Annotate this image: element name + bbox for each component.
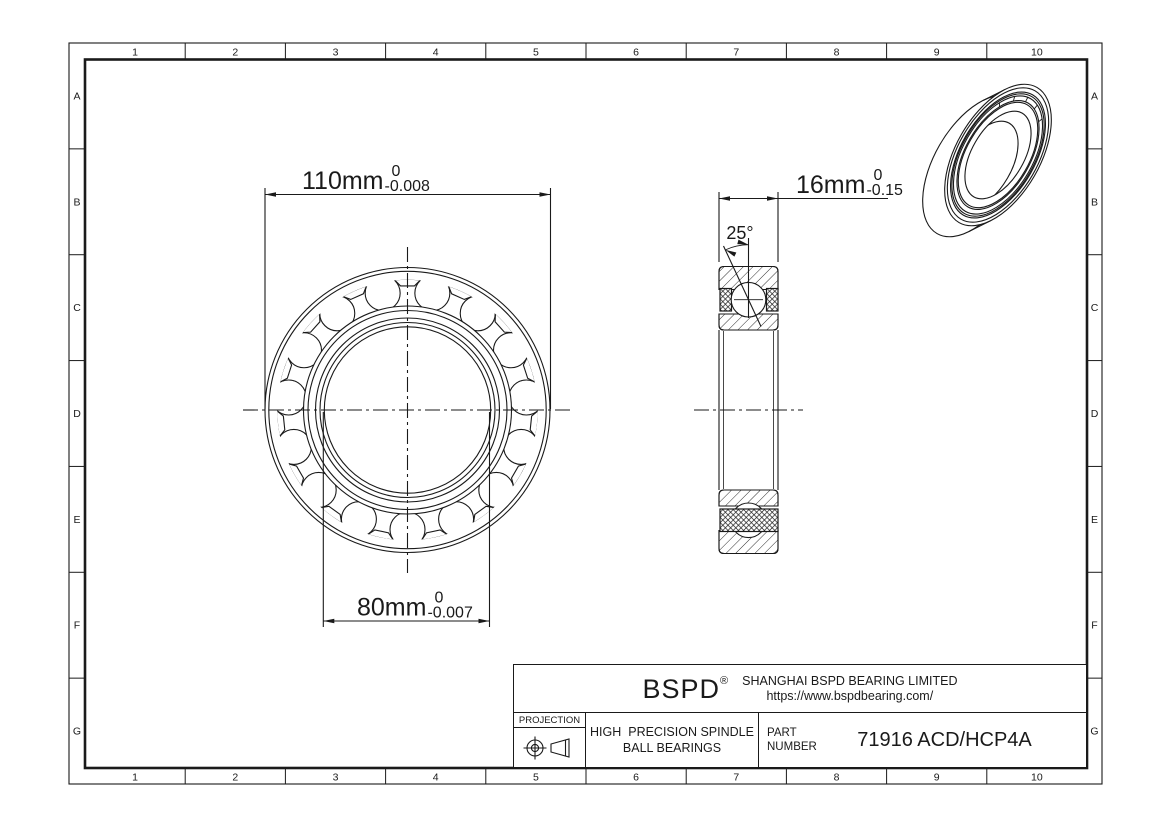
company-logo: BSPD® [643,675,729,703]
projection-symbol [514,728,585,767]
dim-outer-tol-lower: -0.008 [385,178,430,195]
zone-column-label: 9 [934,47,940,59]
zone-column-label: 6 [633,47,639,59]
dimension-width: 16mm0-0.15 [719,167,903,262]
zone-column-label: 3 [333,772,339,784]
zone-column-label: 7 [733,47,739,59]
zone-row-label: A [73,90,80,102]
zone-row-label: A [1091,90,1098,102]
product-line1: HIGH PRECISION SPINDLE [590,724,754,740]
dim-contact-angle-value: 25° [726,223,753,243]
zone-column-label: 8 [834,47,840,59]
zone-row-label: C [1091,302,1099,314]
zone-column-label: 8 [834,772,840,784]
registered-mark: ® [720,675,728,687]
zone-row-label: C [73,302,81,314]
isometric-view [901,66,1074,254]
dim-width-value: 16mm [796,171,865,199]
zone-column-label: 3 [333,47,339,59]
company-name: SHANGHAI BSPD BEARING LIMITED [742,674,957,689]
zone-row-label: G [73,726,81,738]
title-block-company-row: BSPD® SHANGHAI BSPD BEARING LIMITED http… [514,665,1086,713]
part-number-cell: PART NUMBER 71916 ACD/HCP4A [759,713,1086,767]
zone-row-label: G [1090,726,1098,738]
zone-row-label: E [73,514,80,526]
dim-width-tol-lower: -0.15 [866,182,903,199]
projection-cell: PROJECTION [514,713,586,767]
zone-column-label: 2 [232,772,238,784]
drawing-sheet: 1122334455667788991010AABBCCDDEEFFGG110m… [0,0,1170,827]
zone-column-label: 6 [633,772,639,784]
zone-column-label: 10 [1031,47,1043,59]
part-number-label: PART NUMBER [759,726,849,755]
zone-row-label: F [74,620,80,632]
dim-bore-value: 80mm [357,594,426,622]
product-line2: BALL BEARINGS [623,740,721,756]
zone-row-label: F [1091,620,1097,632]
first-angle-projection-icon [521,735,579,761]
zone-column-label: 4 [433,772,439,784]
company-website: https://www.bspdbearing.com/ [766,689,933,704]
logo-text: BSPD [643,674,721,704]
product-cell: HIGH PRECISION SPINDLE BALL BEARINGS [586,713,759,767]
dim-bore-tol-lower: -0.007 [427,605,472,622]
part-number-value: 71916 ACD/HCP4A [849,729,1086,752]
zone-column-label: 9 [934,772,940,784]
zone-row-label: B [1091,196,1098,208]
zone-column-label: 4 [433,47,439,59]
zone-row-label: B [73,196,80,208]
zone-column-label: 7 [733,772,739,784]
zone-column-label: 2 [232,47,238,59]
zone-column-label: 5 [533,772,539,784]
zone-row-label: E [1091,514,1098,526]
zone-column-label: 1 [132,772,138,784]
title-block-detail-row: PROJECTION HIGH PRECI [514,713,1086,767]
zone-row-label: D [73,408,81,420]
zone-column-label: 10 [1031,772,1043,784]
zone-column-label: 5 [533,47,539,59]
projection-label: PROJECTION [514,713,585,728]
title-block: BSPD® SHANGHAI BSPD BEARING LIMITED http… [513,664,1087,768]
zone-row-label: D [1091,408,1099,420]
zone-column-label: 1 [132,47,138,59]
dim-outer-value: 110mm [302,167,384,195]
